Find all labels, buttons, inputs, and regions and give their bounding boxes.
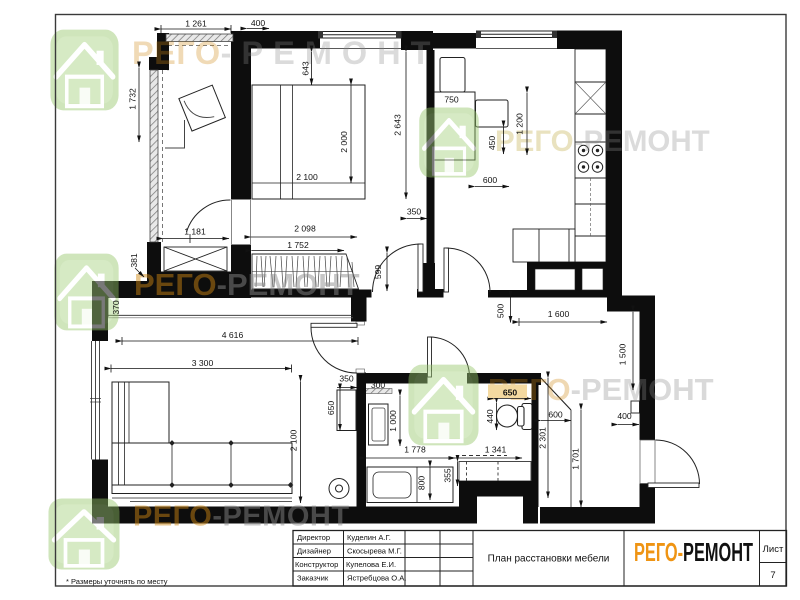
svg-text:7: 7 <box>770 570 775 581</box>
svg-text:1 500: 1 500 <box>618 344 628 366</box>
svg-text:* Размеры уточнять по месту: * Размеры уточнять по месту <box>66 577 168 586</box>
svg-text:Дизайнер: Дизайнер <box>297 547 331 556</box>
svg-text:400: 400 <box>617 411 632 421</box>
svg-text:355: 355 <box>443 468 453 483</box>
svg-text:2 301: 2 301 <box>538 427 548 449</box>
svg-text:План расстановки мебели: План расстановки мебели <box>488 553 610 565</box>
svg-text:Заказчик: Заказчик <box>297 574 329 583</box>
svg-text:Скосырева М.Г.: Скосырева М.Г. <box>347 547 402 556</box>
svg-text:650: 650 <box>503 388 518 398</box>
svg-text:643: 643 <box>301 61 311 76</box>
svg-text:2 098: 2 098 <box>294 224 316 234</box>
svg-text:500: 500 <box>496 304 506 319</box>
svg-text:1 701: 1 701 <box>571 448 581 470</box>
svg-text:600: 600 <box>548 410 563 420</box>
svg-text:Директор: Директор <box>297 533 330 542</box>
svg-text:1 778: 1 778 <box>404 445 426 455</box>
svg-text:599: 599 <box>373 265 383 280</box>
svg-text:1 261: 1 261 <box>185 19 207 29</box>
svg-text:400: 400 <box>251 18 266 28</box>
svg-text:2 000: 2 000 <box>339 131 349 153</box>
svg-text:300: 300 <box>371 380 386 390</box>
svg-text:1 732: 1 732 <box>128 88 138 110</box>
svg-text:2 643: 2 643 <box>393 114 403 136</box>
svg-text:450: 450 <box>487 136 497 151</box>
svg-text:Купелова Е.И.: Купелова Е.И. <box>346 560 396 569</box>
svg-text:2 100: 2 100 <box>296 172 318 182</box>
svg-text:350: 350 <box>407 207 422 217</box>
svg-text:1 341: 1 341 <box>485 445 507 455</box>
svg-text:4 616: 4 616 <box>222 330 244 340</box>
svg-text:440: 440 <box>485 409 495 424</box>
svg-text:РЕГО-РЕМОНТ: РЕГО-РЕМОНТ <box>132 35 441 71</box>
svg-text:1 000: 1 000 <box>388 410 398 432</box>
svg-text:600: 600 <box>483 175 498 185</box>
svg-text:3 300: 3 300 <box>192 358 214 368</box>
svg-text:РЕГО-РЕМОНТ: РЕГО-РЕМОНТ <box>134 267 360 302</box>
svg-text:РЕГО-РЕМОНТ: РЕГО-РЕМОНТ <box>133 501 350 533</box>
svg-text:650: 650 <box>326 401 336 416</box>
svg-text:Конструктор: Конструктор <box>295 560 338 569</box>
svg-text:Куделин А.Г.: Куделин А.Г. <box>347 533 391 542</box>
svg-text:РЕГО-РЕМОНТ: РЕГО-РЕМОНТ <box>634 537 753 567</box>
svg-text:350: 350 <box>339 374 354 384</box>
svg-text:370: 370 <box>111 300 121 315</box>
svg-text:2 100: 2 100 <box>289 430 299 452</box>
svg-text:1 200: 1 200 <box>515 113 525 135</box>
svg-text:1 181: 1 181 <box>184 227 206 237</box>
svg-text:381: 381 <box>129 253 139 268</box>
svg-text:750: 750 <box>444 95 459 105</box>
svg-text:Ястребцова О.А.: Ястребцова О.А. <box>347 574 406 583</box>
svg-text:Лист: Лист <box>763 544 784 555</box>
svg-text:1 752: 1 752 <box>287 240 309 250</box>
svg-text:1 600: 1 600 <box>548 309 570 319</box>
svg-text:800: 800 <box>417 476 427 491</box>
